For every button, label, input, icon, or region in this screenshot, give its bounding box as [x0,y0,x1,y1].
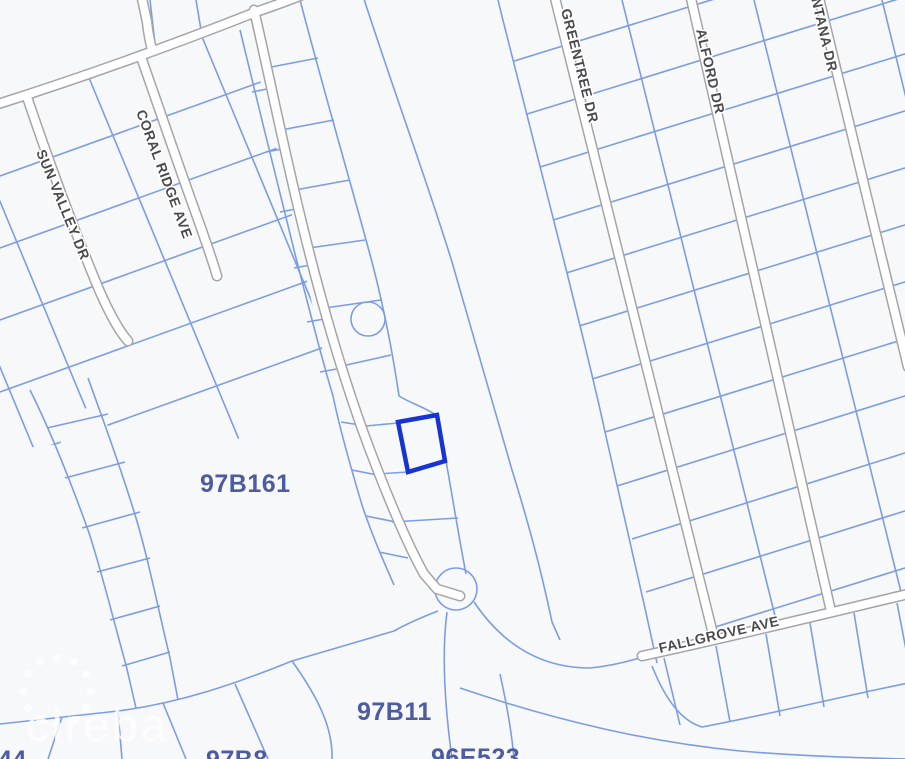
parcel-label-97b8: 97B8 [206,746,268,759]
parcel-label-44: 44 [0,746,27,759]
parcel-map-canvas[interactable]: SUN VALLEY DR CORAL RIDGE AVE GREENTREE … [0,0,905,759]
parcel-label-97b161: 97B161 [200,470,291,498]
parcel-map-viewport[interactable]: SUN VALLEY DR CORAL RIDGE AVE GREENTREE … [0,0,905,759]
watermark-text: cireba [26,699,169,751]
parcel-label-96e523: 96E523 [431,744,520,759]
parcel-label-97b11: 97B11 [357,698,432,726]
